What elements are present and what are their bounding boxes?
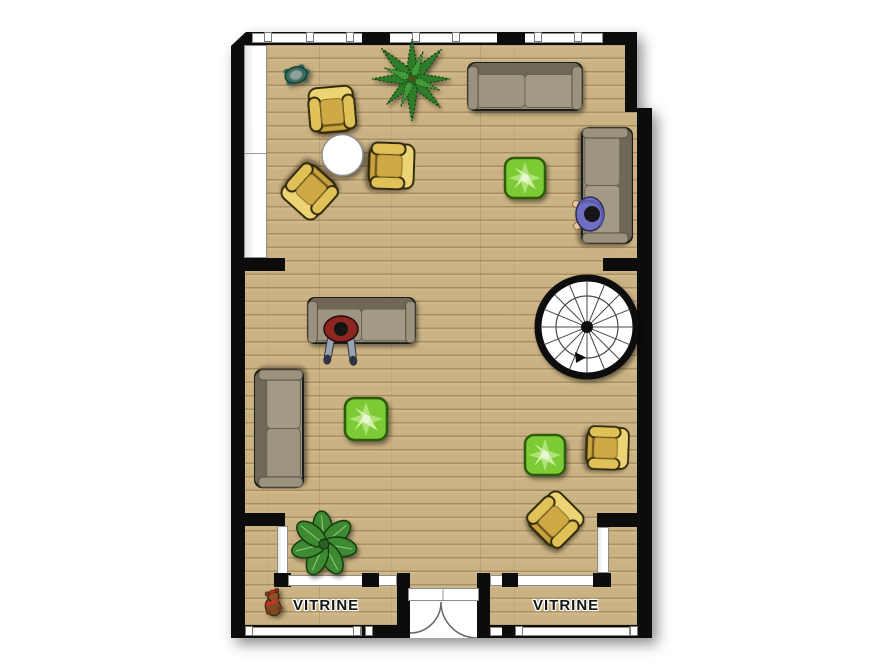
building-outline: VITRINE VITRINE: [0, 0, 888, 666]
wall-left: [231, 32, 245, 638]
window-marker: [353, 626, 361, 636]
window-left-divider: [245, 153, 266, 154]
vitrine-left-label: VITRINE: [293, 597, 359, 614]
wall-top-pier-1: [362, 32, 390, 45]
window-mullion: [534, 32, 542, 42]
window-marker: [515, 626, 523, 636]
vitrine-right-label: VITRINE: [533, 597, 599, 614]
window-mullion: [412, 32, 420, 42]
window-bottom-left: [248, 627, 362, 636]
window-mullion: [452, 32, 460, 42]
vitrine-left-window-band: [288, 575, 397, 586]
window-mullion: [264, 32, 272, 42]
vitrine-left-window-post: [362, 573, 379, 587]
wall-right-lower: [637, 106, 652, 638]
window-top-band: [252, 33, 603, 43]
window-marker: [365, 626, 373, 636]
vitrine-right-window-cap: [593, 573, 611, 587]
vitrine-right-stub-wall: [597, 513, 652, 527]
window-left-glass: [244, 45, 267, 258]
wall-right-upper: [625, 32, 637, 112]
window-marker: [630, 626, 638, 636]
vitrine-right-window-vertical: [597, 527, 609, 573]
wall-mid-left-stub: [231, 258, 285, 271]
building-shadow: VITRINE VITRINE: [0, 0, 888, 666]
door-header: [408, 588, 479, 601]
window-mullion: [346, 32, 354, 42]
wall-top-pier-2: [497, 32, 525, 45]
window-marker: [245, 626, 253, 636]
vitrine-right-window-post: [502, 573, 518, 587]
floor-plan-canvas: VITRINE VITRINE: [0, 0, 888, 666]
door-recess: [410, 600, 477, 638]
vitrine-left-stub-wall: [231, 513, 285, 526]
wall-mid-right-stub: [603, 258, 652, 271]
window-mullion: [306, 32, 314, 42]
window-mullion: [574, 32, 582, 42]
wood-floor: [231, 32, 652, 638]
vitrine-left-window-vertical: [277, 526, 288, 575]
